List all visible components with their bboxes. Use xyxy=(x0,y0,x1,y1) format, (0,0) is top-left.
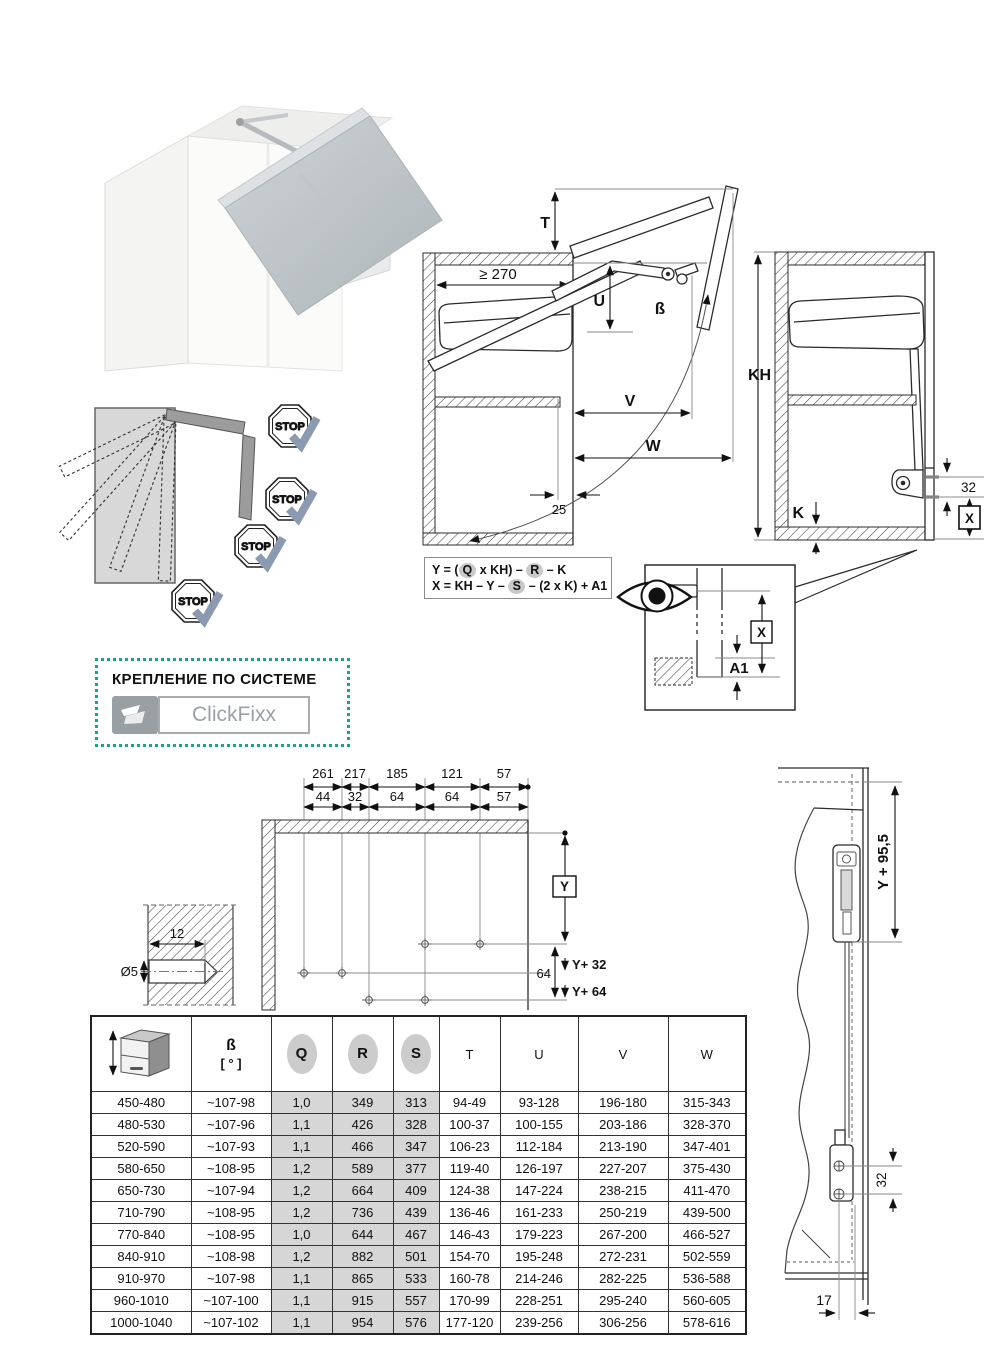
table-row: 710-790~108-951,2736439136-46161-233250-… xyxy=(91,1202,746,1224)
table-cell-kh: 450-480 xyxy=(91,1092,191,1114)
table-cell-v: 272-231 xyxy=(578,1246,668,1268)
table-cell-r: 664 xyxy=(332,1180,393,1202)
table-cell-t: 177-120 xyxy=(439,1312,500,1335)
table-cell-beta: ~107-93 xyxy=(191,1136,271,1158)
table-cell-r: 736 xyxy=(332,1202,393,1224)
table-cell-r: 954 xyxy=(332,1312,393,1335)
header-t: T xyxy=(439,1016,500,1092)
table-cell-beta: ~107-98 xyxy=(191,1092,271,1114)
table-cell-v: 250-219 xyxy=(578,1202,668,1224)
table-cell-kh: 650-730 xyxy=(91,1180,191,1202)
dim-w: W xyxy=(645,438,661,455)
stop-octagon-icon: STOP xyxy=(266,478,314,520)
header-kh-icon xyxy=(91,1016,191,1092)
shelf xyxy=(788,395,916,405)
table-cell-w: 560-605 xyxy=(668,1290,746,1312)
table-cell-s: 467 xyxy=(393,1224,439,1246)
table-cell-r: 882 xyxy=(332,1246,393,1268)
table-body: 450-480~107-981,034931394-4993-128196-18… xyxy=(91,1092,746,1335)
table-cell-t: 106-23 xyxy=(439,1136,500,1158)
table-cell-r: 644 xyxy=(332,1224,393,1246)
table-cell-u: 161-233 xyxy=(500,1202,578,1224)
table-cell-beta: ~107-94 xyxy=(191,1180,271,1202)
table-row: 450-480~107-981,034931394-4993-128196-18… xyxy=(91,1092,746,1114)
table-cell-r: 349 xyxy=(332,1092,393,1114)
dim-64b: 64 xyxy=(445,789,459,804)
table-row: 650-730~107-941,2664409124-38147-224238-… xyxy=(91,1180,746,1202)
table-cell-w: 375-430 xyxy=(668,1158,746,1180)
table-cell-q: 1,1 xyxy=(271,1268,332,1290)
table-cell-w: 578-616 xyxy=(668,1312,746,1335)
table-cell-q: 1,2 xyxy=(271,1180,332,1202)
dim-hole-depth: 12 xyxy=(170,926,184,941)
dim-screw-gap: 32 xyxy=(961,480,976,495)
table-cell-t: 124-38 xyxy=(439,1180,500,1202)
table-cell-t: 119-40 xyxy=(439,1158,500,1180)
table-cell-r: 466 xyxy=(332,1136,393,1158)
table-cell-s: 347 xyxy=(393,1136,439,1158)
table-cell-w: 466-527 xyxy=(668,1224,746,1246)
table-cell-q: 1,1 xyxy=(271,1114,332,1136)
table-cell-w: 347-401 xyxy=(668,1136,746,1158)
table-cell-w: 411-470 xyxy=(668,1180,746,1202)
header-w: W xyxy=(668,1016,746,1092)
table-cell-beta: ~107-96 xyxy=(191,1114,271,1136)
stop-octagon-icon: STOP xyxy=(235,525,283,567)
table-cell-s: 557 xyxy=(393,1290,439,1312)
dim-beta: ß xyxy=(655,299,665,318)
table-cell-s: 377 xyxy=(393,1158,439,1180)
dim-57b: 57 xyxy=(497,789,511,804)
table-cell-u: 126-197 xyxy=(500,1158,578,1180)
table-cell-beta: ~108-95 xyxy=(191,1224,271,1246)
table-cell-u: 195-248 xyxy=(500,1246,578,1268)
table-cell-v: 227-207 xyxy=(578,1158,668,1180)
table-cell-kh: 960-1010 xyxy=(91,1290,191,1312)
table-cell-q: 1,2 xyxy=(271,1158,332,1180)
dim-64a: 64 xyxy=(390,789,404,804)
table-cell-s: 313 xyxy=(393,1092,439,1114)
table-cell-u: 100-155 xyxy=(500,1114,578,1136)
table-cell-u: 179-223 xyxy=(500,1224,578,1246)
table-row: 770-840~108-951,0644467146-43179-223267-… xyxy=(91,1224,746,1246)
table-row: 1000-1040~107-1021,1954576177-120239-256… xyxy=(91,1312,746,1335)
table-cell-v: 306-256 xyxy=(578,1312,668,1335)
table-cell-u: 93-128 xyxy=(500,1092,578,1114)
table-cell-v: 295-240 xyxy=(578,1290,668,1312)
dim-261: 261 xyxy=(312,766,334,781)
shelf xyxy=(435,397,560,407)
table-cell-s: 439 xyxy=(393,1202,439,1224)
table-cell-beta: ~107-102 xyxy=(191,1312,271,1335)
counter-plate xyxy=(655,658,692,685)
table-cell-u: 112-184 xyxy=(500,1136,578,1158)
factor-s: S xyxy=(508,579,525,594)
table-cell-s: 576 xyxy=(393,1312,439,1335)
header-beta: ß[ ° ] xyxy=(191,1016,271,1092)
formula-x: X = KH – Y – S – (2 x K) + A1 xyxy=(432,578,604,594)
side-panel-view: Y + 95,5 32 17 xyxy=(762,760,1000,1326)
stop-sign-label: STOP xyxy=(275,421,305,433)
panel-break-line xyxy=(785,808,814,1273)
table-cell-beta: ~107-98 xyxy=(191,1268,271,1290)
dim-front-gap: 25 xyxy=(552,502,566,517)
door-stop-position xyxy=(239,435,255,520)
mounting-system-box: КРЕПЛЕНИЕ ПО СИСТЕМЕ ClickFixx xyxy=(95,658,350,747)
door-top-position xyxy=(166,409,245,434)
table-cell-kh: 770-840 xyxy=(91,1224,191,1246)
table-cell-beta: ~107-100 xyxy=(191,1290,271,1312)
table-cell-w: 502-559 xyxy=(668,1246,746,1268)
callout-triangle xyxy=(795,550,917,603)
clickfixx-logo: ClickFixx xyxy=(158,696,310,734)
drilling-pattern-diagram: 261 217 185 121 57 44 32 64 64 57 Y xyxy=(105,758,600,1020)
table-cell-s: 501 xyxy=(393,1246,439,1268)
table-cell-q: 1,2 xyxy=(271,1246,332,1268)
table-cell-w: 536-588 xyxy=(668,1268,746,1290)
closed-flap-diagram: KH 32 X K xyxy=(740,240,1000,562)
table-row: 840-910~108-981,2882501154-70195-248272-… xyxy=(91,1246,746,1268)
header-u: U xyxy=(500,1016,578,1092)
stop-octagon-icon: STOP xyxy=(172,580,220,622)
formula-box: Y = (Q x KH) – R – K X = KH – Y – S – (2… xyxy=(424,557,612,599)
table-row: 580-650~108-951,2589377119-40126-197227-… xyxy=(91,1158,746,1180)
side-panel xyxy=(262,820,275,1010)
table-cell-u: 239-256 xyxy=(500,1312,578,1335)
dim-185: 185 xyxy=(386,766,408,781)
dim-32: 32 xyxy=(348,789,362,804)
table-cell-s: 533 xyxy=(393,1268,439,1290)
table-cell-s: 328 xyxy=(393,1114,439,1136)
panel-section xyxy=(148,905,233,1005)
dim-217: 217 xyxy=(344,766,366,781)
table-header-row: ß[ ° ] Q R S T U V W xyxy=(91,1016,746,1092)
dim-y64: Y+ 64 xyxy=(572,984,607,999)
table-cell-kh: 710-790 xyxy=(91,1202,191,1224)
table-cell-kh: 580-650 xyxy=(91,1158,191,1180)
lever-arm xyxy=(910,349,923,470)
table-cell-t: 146-43 xyxy=(439,1224,500,1246)
back-panel xyxy=(423,253,435,545)
detail-view: X A1 xyxy=(610,540,1000,720)
lift-unit-body xyxy=(789,296,924,349)
factor-r: R xyxy=(526,563,543,578)
table-row: 910-970~107-981,1865533160-78214-246282-… xyxy=(91,1268,746,1290)
dim-edge-dist: 17 xyxy=(816,1292,832,1308)
table-cell-q: 1,1 xyxy=(271,1290,332,1312)
drill-holes xyxy=(298,938,486,1006)
dim-y32: Y+ 32 xyxy=(572,957,606,972)
dim-t: T xyxy=(540,215,550,232)
stop-sign-label: STOP xyxy=(178,596,208,608)
dim-a1: A1 xyxy=(729,660,748,677)
table-cell-t: 94-49 xyxy=(439,1092,500,1114)
top-panel xyxy=(423,253,573,265)
dim-x-boxed: X xyxy=(757,625,766,640)
table-cell-beta: ~108-98 xyxy=(191,1246,271,1268)
dim-y-boxed: Y xyxy=(560,879,569,894)
header-v: V xyxy=(578,1016,668,1092)
table-cell-q: 1,1 xyxy=(271,1312,332,1335)
table-cell-t: 170-99 xyxy=(439,1290,500,1312)
header-q: Q xyxy=(271,1016,332,1092)
dim-y-95: Y + 95,5 xyxy=(875,834,892,890)
table-row: 960-1010~107-1001,1915557170-99228-25129… xyxy=(91,1290,746,1312)
table-cell-beta: ~108-95 xyxy=(191,1158,271,1180)
bottom-panel xyxy=(423,533,573,545)
table-row: 520-590~107-931,1466347106-23112-184213-… xyxy=(91,1136,746,1158)
table-cell-v: 238-215 xyxy=(578,1180,668,1202)
stop-sign-label: STOP xyxy=(241,541,271,553)
table-cell-q: 1,0 xyxy=(271,1092,332,1114)
dim-screw-gap: 32 xyxy=(874,1172,889,1187)
table-cell-s: 409 xyxy=(393,1180,439,1202)
stop-positions-diagram: STOPSTOPSTOPSTOP xyxy=(85,395,355,653)
table-cell-v: 282-225 xyxy=(578,1268,668,1290)
table-cell-t: 160-78 xyxy=(439,1268,500,1290)
table-cell-r: 865 xyxy=(332,1268,393,1290)
table-cell-t: 100-37 xyxy=(439,1114,500,1136)
table-cell-u: 228-251 xyxy=(500,1290,578,1312)
table-cell-r: 426 xyxy=(332,1114,393,1136)
table-cell-q: 1,0 xyxy=(271,1224,332,1246)
dim-hole-dia: Ø5 xyxy=(121,964,138,979)
dim-u: U xyxy=(593,293,605,310)
formula-y: Y = (Q x KH) – R – K xyxy=(432,562,604,578)
table-cell-t: 136-46 xyxy=(439,1202,500,1224)
table-cell-kh: 480-530 xyxy=(91,1114,191,1136)
product-photo-cabinet xyxy=(90,78,445,378)
table-cell-beta: ~108-95 xyxy=(191,1202,271,1224)
table-cell-v: 203-186 xyxy=(578,1114,668,1136)
dim-row-gap: 64 xyxy=(537,966,551,981)
cabinet-side-panel xyxy=(105,136,188,371)
stop-sign-label: STOP xyxy=(272,494,302,506)
clickfixx-flap-icon xyxy=(112,696,158,734)
stop-octagon-icon: STOP xyxy=(269,405,317,447)
table-cell-q: 1,1 xyxy=(271,1136,332,1158)
dim-x-boxed: X xyxy=(965,511,974,526)
table-cell-w: 328-370 xyxy=(668,1114,746,1136)
dim-57a: 57 xyxy=(497,766,511,781)
table-cell-q: 1,2 xyxy=(271,1202,332,1224)
cabinet-height-icon xyxy=(106,1024,176,1082)
table-cell-w: 315-343 xyxy=(668,1092,746,1114)
table-cell-kh: 840-910 xyxy=(91,1246,191,1268)
table-cell-r: 589 xyxy=(332,1158,393,1180)
table-cell-kh: 520-590 xyxy=(91,1136,191,1158)
table-cell-v: 213-190 xyxy=(578,1136,668,1158)
table-cell-v: 196-180 xyxy=(578,1092,668,1114)
header-r: R xyxy=(332,1016,393,1092)
dim-44: 44 xyxy=(316,789,330,804)
dim-kh: KH xyxy=(748,367,771,384)
dim-v: V xyxy=(625,393,636,410)
table-cell-kh: 910-970 xyxy=(91,1268,191,1290)
dim-min-depth: ≥ 270 xyxy=(479,266,516,283)
open-flap-diagram: ≥ 270 T U ß V W 25 xyxy=(420,175,770,553)
dim-121: 121 xyxy=(441,766,463,781)
dimensions-table: ß[ ° ] Q R S T U V W 450-480~107-981,034… xyxy=(90,1015,747,1335)
table-cell-kh: 1000-1040 xyxy=(91,1312,191,1335)
top-panel xyxy=(265,820,528,833)
table-cell-u: 214-246 xyxy=(500,1268,578,1290)
dim-k: K xyxy=(792,505,804,522)
table-cell-w: 439-500 xyxy=(668,1202,746,1224)
table-cell-r: 915 xyxy=(332,1290,393,1312)
catalog-page: ≥ 270 T U ß V W 25 xyxy=(0,0,1000,1359)
table-cell-v: 267-200 xyxy=(578,1224,668,1246)
table-cell-u: 147-224 xyxy=(500,1180,578,1202)
mounting-title: КРЕПЛЕНИЕ ПО СИСТЕМЕ xyxy=(112,671,333,688)
table-cell-t: 154-70 xyxy=(439,1246,500,1268)
header-s: S xyxy=(393,1016,439,1092)
door-open-position xyxy=(570,197,713,258)
factor-q: Q xyxy=(459,563,477,578)
table-row: 480-530~107-961,1426328100-37100-155203-… xyxy=(91,1114,746,1136)
